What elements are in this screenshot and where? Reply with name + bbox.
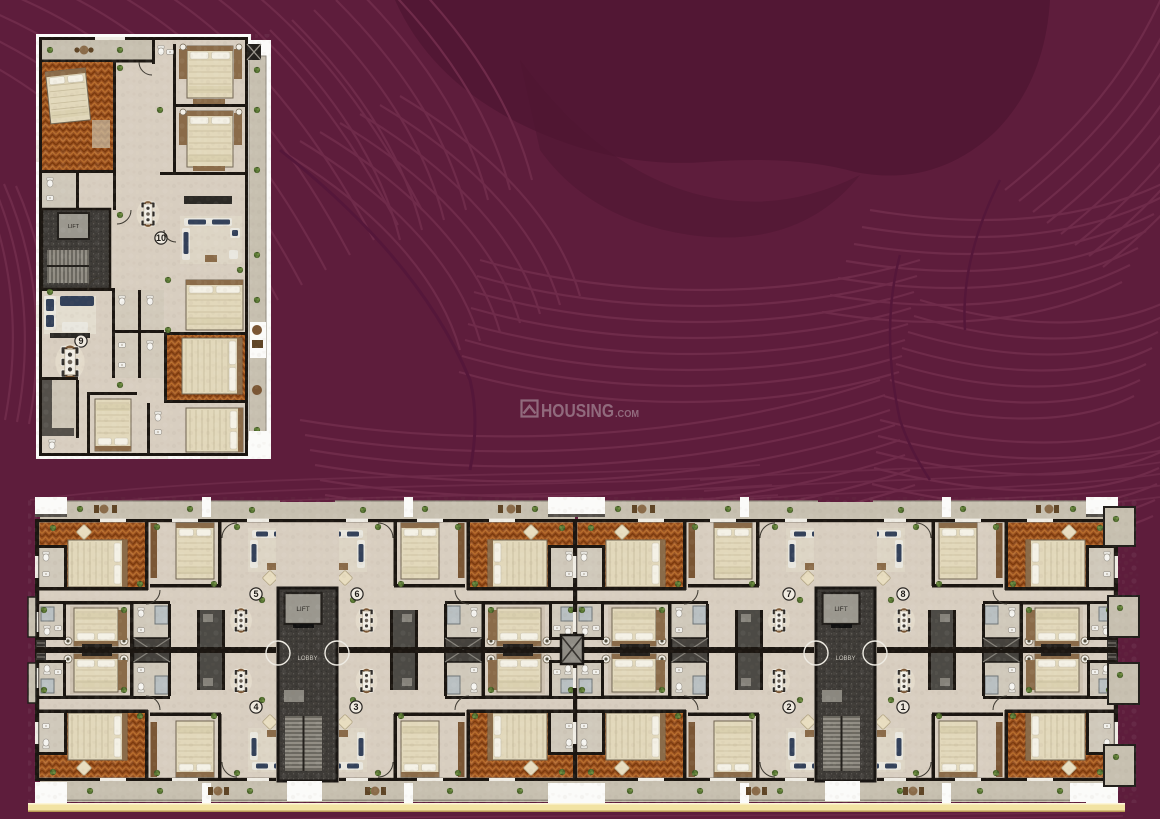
svg-text:.COM: .COM — [615, 409, 639, 420]
svg-text:HOUSING: HOUSING — [541, 401, 614, 421]
